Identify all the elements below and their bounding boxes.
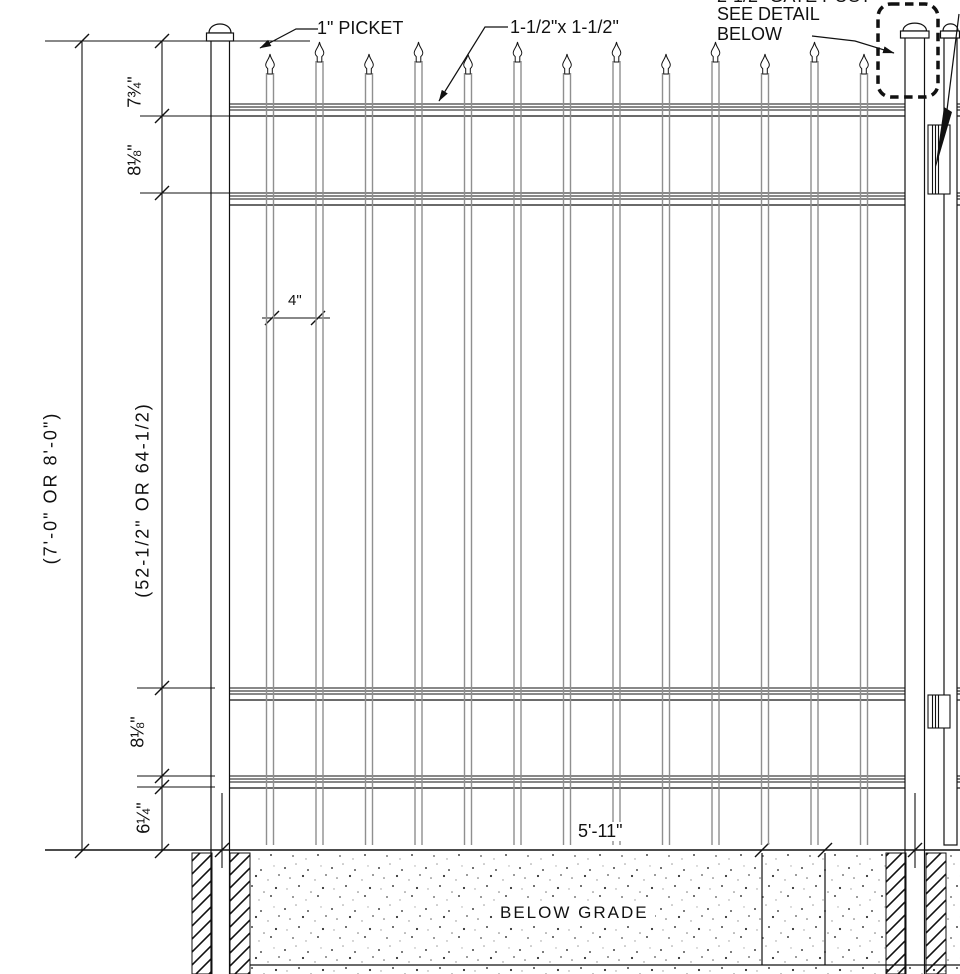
picket bbox=[860, 54, 869, 845]
dim-picket-gap: 4" bbox=[288, 293, 302, 309]
picket bbox=[464, 54, 473, 845]
picket bbox=[513, 42, 522, 845]
picket bbox=[563, 54, 572, 845]
post-cap-band bbox=[901, 31, 930, 38]
post-cap-dome bbox=[903, 23, 927, 31]
dim-overall-height: (7'-0" OR 8'-0") bbox=[42, 412, 61, 565]
picket-spear-tip bbox=[464, 54, 473, 74]
post-hole-hatch bbox=[926, 853, 946, 974]
see-detail-label-line1: SEE DETAIL bbox=[717, 5, 820, 24]
dim-picket-area: (52-1/2" OR 64-1/2) bbox=[134, 402, 153, 597]
dim-panel-width: 5'-11" bbox=[575, 822, 626, 841]
picket-spear-tip bbox=[711, 42, 720, 62]
picket bbox=[612, 42, 621, 845]
post-cap-dome bbox=[943, 24, 958, 31]
see-detail-label-line2: BELOW bbox=[717, 25, 782, 44]
picket-spear-tip bbox=[266, 54, 275, 74]
left-post bbox=[207, 24, 234, 974]
picket bbox=[711, 42, 720, 845]
picket-leader bbox=[260, 29, 318, 48]
see-detail-leader bbox=[812, 36, 894, 53]
picket bbox=[315, 42, 324, 845]
picket-spear-tip bbox=[761, 54, 770, 74]
picket-spear-tip bbox=[563, 54, 572, 74]
picket-spear-tip bbox=[612, 42, 621, 62]
picket-spear-tip bbox=[860, 54, 869, 74]
picket-spear-tip bbox=[414, 42, 423, 62]
picket bbox=[761, 54, 770, 845]
post-hole-hatch bbox=[230, 853, 250, 974]
picket-spear-tip bbox=[365, 54, 374, 74]
picket-spear-tip bbox=[513, 42, 522, 62]
rail-leader bbox=[439, 27, 508, 101]
dim-rail-spacing-bottom: 8⅛" bbox=[129, 716, 148, 747]
picket bbox=[662, 54, 671, 845]
fence-rails bbox=[230, 104, 960, 788]
dimension-ticks bbox=[75, 34, 922, 858]
picket-spear-tip bbox=[810, 42, 819, 62]
dimension-lines bbox=[45, 41, 960, 868]
post-hole-hatch bbox=[192, 853, 212, 974]
dim-bottom-rail-to-grade: 6¼" bbox=[135, 802, 154, 833]
picket bbox=[365, 54, 374, 845]
picket-spear-tip bbox=[662, 54, 671, 74]
concrete-stipple-bottom bbox=[250, 966, 960, 974]
below-grade-label: BELOW GRADE bbox=[494, 903, 655, 923]
rail-size-label: 1-1/2"x 1-1/2" bbox=[510, 18, 619, 37]
fence-elevation-drawing: 1" PICKET 1-1/2"x 1-1/2" 2-1/2" GATE POS… bbox=[0, 0, 960, 974]
picket bbox=[414, 42, 423, 845]
post-cap-dome bbox=[209, 24, 231, 33]
dim-rail-spacing-top: 8⅛" bbox=[126, 144, 145, 175]
picket bbox=[810, 42, 819, 845]
dim-top-rail-offset: 7¾" bbox=[126, 76, 145, 107]
picket-spear-tip bbox=[315, 42, 324, 62]
picket-label: 1" PICKET bbox=[317, 19, 403, 38]
post-cap-band bbox=[207, 33, 234, 41]
post-hole-hatch bbox=[886, 853, 906, 974]
picket bbox=[266, 54, 275, 845]
fence-pickets bbox=[266, 42, 869, 845]
concrete-stipple-right bbox=[946, 853, 960, 965]
